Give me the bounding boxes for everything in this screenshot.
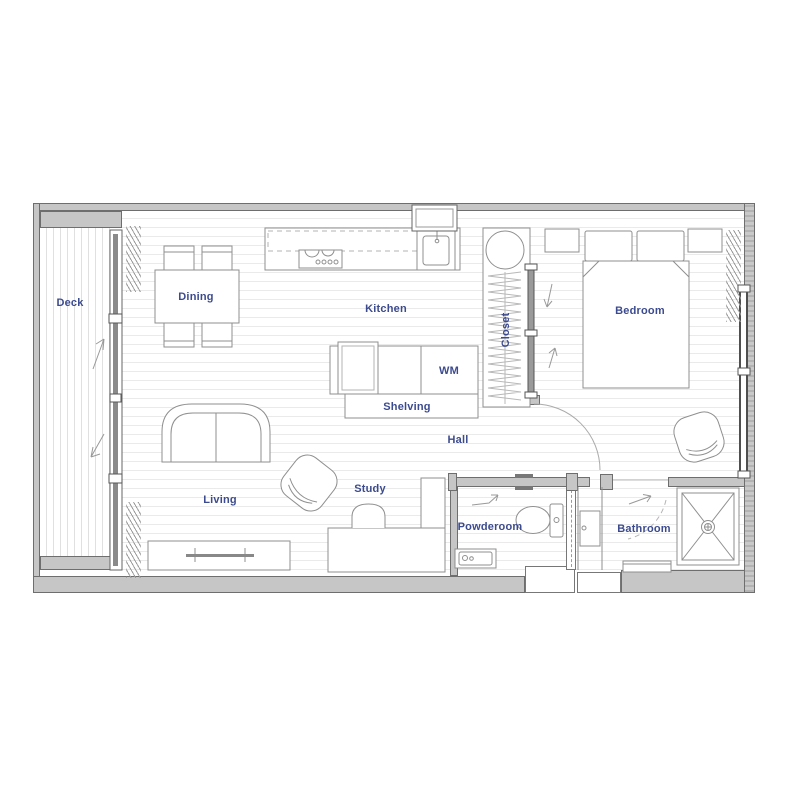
tv: [186, 554, 254, 557]
cooktop: [299, 250, 342, 268]
closet-door-arrows: [544, 284, 557, 368]
desk-chair: [352, 504, 385, 528]
hall-stool: [670, 408, 728, 466]
door-track-bottom: [515, 486, 533, 490]
label-bedroom: Bedroom: [615, 305, 665, 317]
floor-plan: Deck Dining Kitchen WM Shelving Closet B…: [0, 0, 800, 800]
pillow-right: [637, 231, 684, 261]
pillow-left: [585, 231, 632, 261]
hand-basin: [455, 549, 496, 568]
toilet: [516, 504, 563, 537]
label-bathroom: Bathroom: [617, 523, 671, 535]
kitchen-sink: [417, 230, 455, 270]
label-powderoom: Powderoom: [458, 521, 523, 533]
vanity-cabinet: [580, 511, 600, 546]
deck-slide-arrows: [91, 339, 104, 457]
label-living: Living: [203, 494, 237, 506]
vanity-nook: [578, 487, 602, 570]
kitchen-fixtures: [265, 205, 460, 270]
label-deck: Deck: [56, 297, 83, 309]
bath-door-arrow: [629, 495, 651, 505]
tv-console: [148, 541, 290, 570]
double-bed: [583, 261, 689, 388]
deck-sliding-door: [109, 230, 122, 570]
label-dining: Dining: [178, 291, 213, 303]
study-desk: [328, 478, 445, 572]
nightstand-left: [545, 229, 579, 252]
label-study: Study: [354, 483, 386, 495]
label-kitchen: Kitchen: [365, 303, 407, 315]
label-wm: WM: [439, 365, 459, 377]
nightstand-right: [688, 229, 722, 252]
powder-door-arrow: [472, 495, 498, 505]
label-shelving: Shelving: [383, 401, 430, 413]
plan-linework: [0, 0, 800, 800]
label-closet: Closet: [500, 313, 512, 348]
door-track-top: [515, 474, 533, 478]
window-jambs: [738, 285, 750, 478]
range-hood-vent: [412, 205, 457, 231]
bath-bench: [623, 561, 671, 572]
shower: [677, 488, 739, 565]
sofa: [162, 404, 270, 462]
armchair: [275, 449, 342, 516]
hall-door-swing: [534, 404, 600, 470]
label-hall: Hall: [448, 434, 469, 446]
